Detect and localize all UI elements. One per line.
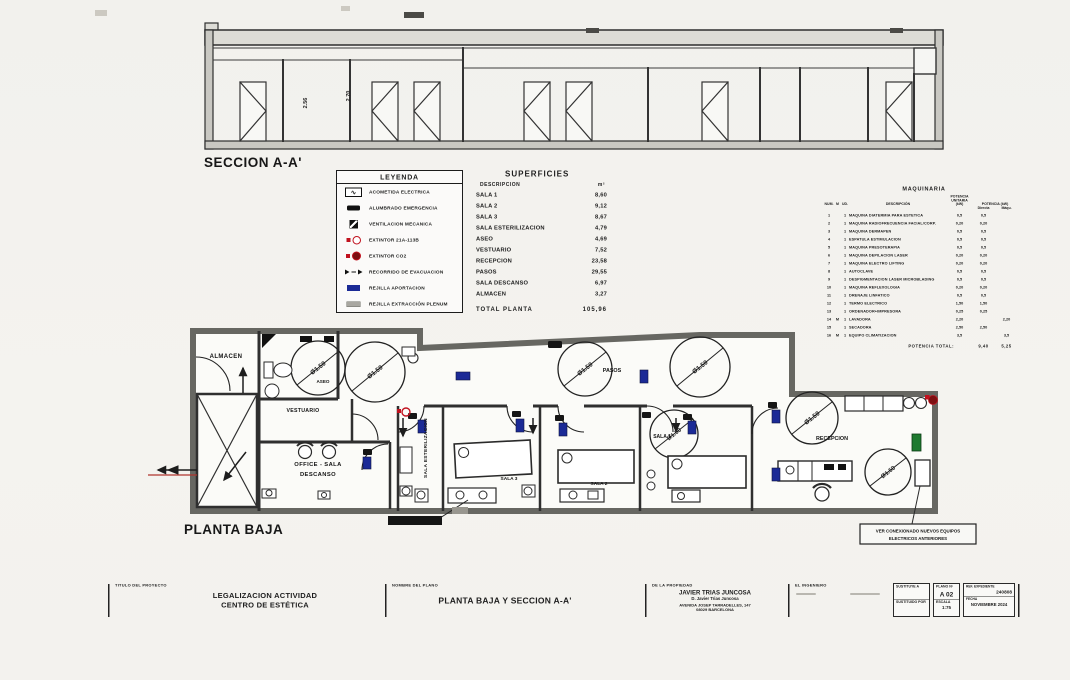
note-line-2: ELECTRICOS ANTERIORES (889, 536, 947, 541)
superficies-total-label: TOTAL PLANTA (476, 306, 533, 313)
legend-items: ∿ACOMETIDA ELECTRICAALUMBRADO EMERGENCIA… (337, 184, 462, 312)
legend-item-label: VENTILACION MECANICA (369, 221, 432, 227)
superficies-row: VESTUARIO7,52 (476, 245, 607, 256)
superficies-row: ALMACEN3,27 (476, 289, 607, 300)
superficies-title: SUPERFICIES (505, 170, 626, 179)
recorrido-evacuacion-icon (343, 270, 364, 275)
ventilacion-mecanica-icon (343, 220, 364, 229)
acometida-electrica-icon: ∿ (343, 187, 364, 197)
superficies-row: SALA 38,67 (476, 212, 607, 223)
label-almacen: ALMACEN (210, 354, 243, 360)
title-block: TITULO DEL PROYECTO LEGALIZACION ACTIVID… (100, 580, 1070, 670)
maquinaria-row: 41ESPATULA ESTIMULACION0,50,5 (824, 235, 1024, 243)
legend-item-label: ACOMETIDA ELECTRICA (369, 189, 430, 195)
titulo-proyecto-label: TITULO DEL PROYECTO (115, 583, 167, 588)
maquinaria-row: 16M1EQUIPO CLIMATIZACION3,53,5 (824, 331, 1024, 339)
drawing-sheet: 2.56 2.70 SECCION A-A' (0, 0, 1070, 680)
section-drawing: 2.56 2.70 SECCION A-A' (204, 12, 943, 170)
legend-item: REJILLA APORTACION (337, 280, 462, 296)
label-office-1: OFFICE - SALA (294, 462, 342, 468)
legend-item: ALUMBRADO EMERGENCIA (337, 200, 462, 216)
rejilla-extraccion-icon (343, 301, 364, 307)
note-line-1: VER CONEXIONADO NUEVOS EQUIPOS (876, 529, 960, 534)
plano-num-box: PLANO Nº A 02 ESCALA 1:75 (933, 583, 960, 617)
owner-block: JAVIER TRIAS JUNCOSA D. Javier Trias Jun… (650, 589, 780, 612)
expediente-box: REF. EXPEDIENTE 240808 FECHA NOVIEMBRE 2… (963, 583, 1015, 617)
legend-item-label: ALUMBRADO EMERGENCIA (369, 205, 438, 211)
label-vestuario: VESTUARIO (287, 408, 320, 414)
section-doors (240, 82, 912, 141)
maquinaria-row: 71MAQUINA ELECTRO LIFTING0,200,20 (824, 259, 1024, 267)
superficies-rows: SALA 18,60SALA 29,12SALA 38,67SALA ESTER… (476, 190, 626, 300)
maquinaria-row: 14M1LAVADORA2,202,20 (824, 315, 1024, 323)
legend-item-label: EXTINTOR 21A-113B (369, 237, 419, 243)
fecha-value: NOVIEMBRE 2024 (964, 602, 1014, 608)
legend-item: REJILLA EXTRACCIÓN PLENUM (337, 296, 462, 312)
owner-sub: D. Javier Trias Juncosa (650, 596, 780, 601)
maquinaria-row: 91DESPIGMENTACION LASER MICROBLADING0,50… (824, 275, 1024, 283)
maquinaria-title: MAQUINARIA (824, 186, 1024, 192)
maq-col-directa: Directa (972, 206, 995, 210)
nombre-plano-label: NOMBRE DEL PLANO (392, 583, 438, 588)
superficies-row: SALA 29,12 (476, 201, 607, 212)
owner-name: JAVIER TRIAS JUNCOSA (650, 589, 780, 596)
maq-col-maqu: Máqu. (995, 206, 1018, 210)
escala-value: 1:75 (934, 605, 959, 611)
legend-item-label: REJILLA APORTACION (369, 285, 425, 291)
project-title: LEGALIZACION ACTIVIDAD CENTRO DE ESTÉTIC… (160, 591, 370, 610)
maq-col-unit: POTENCIAUNITARIA(kW) (947, 195, 972, 206)
label-office-2: DESCANSO (300, 472, 336, 478)
legend-item-label: REJILLA EXTRACCIÓN PLENUM (369, 301, 448, 307)
label-sala2: SALA 2 (591, 481, 608, 487)
sustituye-box: SUSTITUYE A SUSTITUIDO POR (893, 583, 930, 617)
maquinaria-row: 21MAQUINA RADIOFRECUENCIA FACIAL/CORP.0,… (824, 219, 1024, 227)
extintor-21a-icon (343, 236, 364, 245)
maquinaria-row: 31MAQUINA DERMAPEN0,50,5 (824, 227, 1024, 235)
maquinaria-row: 11MAQUINA DIATERMIA PARA ESTETICA0,50,5 (824, 211, 1024, 219)
maquinaria-row: 81AUTOCLAVE0,50,5 (824, 267, 1024, 275)
alumbrado-emergencia-icon (343, 206, 364, 211)
legend-item: EXTINTOR 21A-113B (337, 232, 462, 248)
superficies-row: RECEPCION23,58 (476, 256, 607, 267)
maquinaria-row: 101MAQUINA REFLEXOLOGIA0,200,20 (824, 283, 1024, 291)
plano-num-value: A 02 (934, 590, 959, 600)
section-dim-2: 2.70 (346, 91, 352, 102)
scan-smudges (95, 6, 350, 16)
maquinaria-row: 121TERMO ELECTRICO1,501,50 (824, 299, 1024, 307)
maquinaria-rows: 11MAQUINA DIATERMIA PARA ESTETICA0,50,52… (824, 211, 1024, 339)
superficies-row: PASOS29,55 (476, 267, 607, 278)
legend-item: EXTINTOR CO2 (337, 248, 462, 264)
sustituye-label: SUSTITUYE A (894, 584, 929, 600)
superficies-row: SALA ESTERILIZACION4,79 (476, 223, 607, 234)
plan-name: PLANTA BAJA Y SECCION A-A' (405, 596, 605, 606)
legend-item: VENTILACION MECANICA (337, 216, 462, 232)
note-box: VER CONEXIONADO NUEVOS EQUIPOS ELECTRICO… (860, 524, 976, 544)
superficies-col-desc: DESCRIPCION (480, 182, 520, 188)
sustituido-label: SUSTITUIDO POR (894, 600, 929, 615)
label-aseo: ASEO (316, 379, 329, 384)
maquinaria-row: 61MAQUINA DEPILACION LASER0,200,20 (824, 251, 1024, 259)
maquinaria-row: 131ORDENADOR+IMPRESORA0,250,25 (824, 307, 1024, 315)
maquinaria-table: MAQUINARIA NUM. M UD. DESCRIPCIÓN POTENC… (824, 186, 1070, 511)
legend-item: RECORRIDO DE EVACUACION (337, 264, 462, 280)
superficies-col-m2: m² (598, 182, 605, 188)
superficies-row: ASEO4,69 (476, 234, 607, 245)
maquinaria-row: 51MAQUINA PRESOTERAPIA0,50,5 (824, 243, 1024, 251)
legend-item: ∿ACOMETIDA ELECTRICA (337, 184, 462, 200)
maq-total-label: POTENCIA TOTAL: (824, 343, 954, 348)
extintor-co2-icon (343, 252, 364, 261)
plan-title: PLANTA BAJA (184, 522, 283, 537)
maq-total-maqu: 5,25 (995, 343, 1018, 348)
section-title: SECCION A-A' (204, 155, 302, 170)
superficies-row: SALA 18,60 (476, 190, 607, 201)
legend-item-label: RECORRIDO DE EVACUACION (369, 269, 443, 275)
maq-total-directa: 9,40 (972, 343, 995, 348)
superficies-total-value: 105,96 (583, 306, 607, 313)
superficies-table: SUPERFICIES DESCRIPCION m² SALA 18,60SAL… (476, 170, 776, 455)
label-sala3: SALA 3 (501, 476, 518, 482)
superficies-row: SALA DESCANSO6,97 (476, 278, 607, 289)
legend-title: LEYENDA (337, 171, 462, 184)
legend-item-label: EXTINTOR CO2 (369, 253, 406, 259)
propiedad-label: DE LA PROPIEDAD (652, 583, 693, 588)
maquinaria-row: 151SECADORA2,502,50 (824, 323, 1024, 331)
section-dim-1: 2.56 (303, 98, 309, 109)
ingeniero-label: EL INGENIERO (795, 583, 827, 588)
maquinaria-row: 111DRENAJE LINFATICO0,50,5 (824, 291, 1024, 299)
rejilla-aportacion-icon (343, 285, 364, 291)
owner-address-2: 08029 BARCELONA (650, 608, 780, 613)
